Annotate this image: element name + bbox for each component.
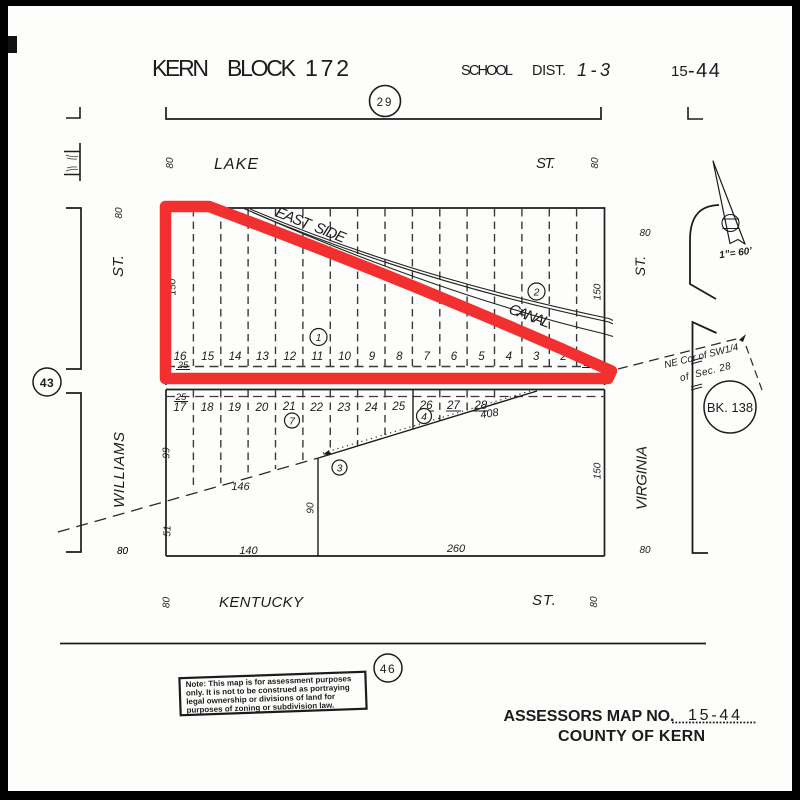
svg-text:22: 22 <box>309 402 323 414</box>
svg-text:1: 1 <box>316 332 322 344</box>
svg-text:10: 10 <box>338 351 351 363</box>
svg-text:3: 3 <box>533 351 540 363</box>
svg-text:19: 19 <box>228 402 241 414</box>
svg-text:COUNTY OF KERN: COUNTY OF KERN <box>558 728 705 745</box>
svg-text:-44: -44 <box>688 60 721 82</box>
svg-text:BK. 138: BK. 138 <box>707 400 753 415</box>
svg-text:ST.: ST. <box>536 155 556 172</box>
svg-text:15: 15 <box>671 63 688 80</box>
svg-text:ST.: ST. <box>532 592 557 609</box>
svg-text:8: 8 <box>396 351 403 363</box>
svg-text:90: 90 <box>306 502 317 514</box>
svg-text:20: 20 <box>255 402 269 414</box>
svg-text:146: 146 <box>231 481 250 493</box>
svg-text:18: 18 <box>201 402 214 414</box>
svg-text:260: 260 <box>446 543 466 555</box>
svg-text:ST.: ST. <box>110 255 127 277</box>
svg-text:7: 7 <box>423 351 430 363</box>
svg-text:46: 46 <box>380 662 396 676</box>
svg-text:WILLIAMS: WILLIAMS <box>111 432 128 508</box>
svg-text:150: 150 <box>593 283 604 300</box>
svg-text:KERN: KERN <box>152 55 209 81</box>
svg-text:80: 80 <box>117 546 129 557</box>
svg-text:6: 6 <box>451 351 458 363</box>
svg-text:80: 80 <box>589 596 600 608</box>
svg-text:80: 80 <box>639 228 651 239</box>
svg-text:80: 80 <box>590 157 601 169</box>
svg-text:51: 51 <box>163 525 174 536</box>
svg-text:12: 12 <box>283 351 296 363</box>
svg-text:25: 25 <box>391 401 405 413</box>
svg-text:LAKE: LAKE <box>214 156 258 173</box>
svg-text:29: 29 <box>377 97 394 109</box>
svg-text:15-44: 15-44 <box>688 707 740 724</box>
svg-text:140: 140 <box>239 545 258 557</box>
svg-text:DIST.: DIST. <box>532 63 566 79</box>
svg-text:14: 14 <box>229 351 242 363</box>
svg-text:KENTUCKY: KENTUCKY <box>219 594 304 611</box>
svg-text:ST.: ST. <box>632 256 648 277</box>
svg-text:13: 13 <box>256 351 269 363</box>
svg-text:4: 4 <box>421 411 427 423</box>
svg-text:BLOCK: BLOCK <box>227 55 297 81</box>
svg-text:15: 15 <box>201 351 214 363</box>
svg-text:3: 3 <box>337 463 343 475</box>
svg-text:1-3: 1-3 <box>577 60 610 80</box>
svg-text:4: 4 <box>506 351 512 363</box>
svg-text:2: 2 <box>533 287 540 299</box>
svg-text:5: 5 <box>478 351 485 363</box>
svg-text:150: 150 <box>593 462 604 479</box>
svg-text:43: 43 <box>40 376 54 390</box>
svg-text:27: 27 <box>446 400 460 412</box>
svg-text:80: 80 <box>639 545 651 556</box>
svg-text:99: 99 <box>162 447 173 459</box>
svg-text:80: 80 <box>114 207 125 219</box>
svg-text:80: 80 <box>165 157 176 169</box>
svg-text:17: 17 <box>173 402 186 414</box>
svg-text:9: 9 <box>369 351 376 363</box>
svg-text:ASSESSORS MAP NO.: ASSESSORS MAP NO. <box>504 708 675 725</box>
svg-text:80: 80 <box>162 597 173 609</box>
svg-text:21: 21 <box>282 401 296 413</box>
svg-text:24: 24 <box>364 402 378 414</box>
svg-text:172: 172 <box>305 55 349 81</box>
svg-text:VIRGINIA: VIRGINIA <box>634 446 651 510</box>
svg-text:SCHOOL: SCHOOL <box>461 63 513 79</box>
svg-text:11: 11 <box>311 351 323 363</box>
svg-text:23: 23 <box>337 402 351 414</box>
